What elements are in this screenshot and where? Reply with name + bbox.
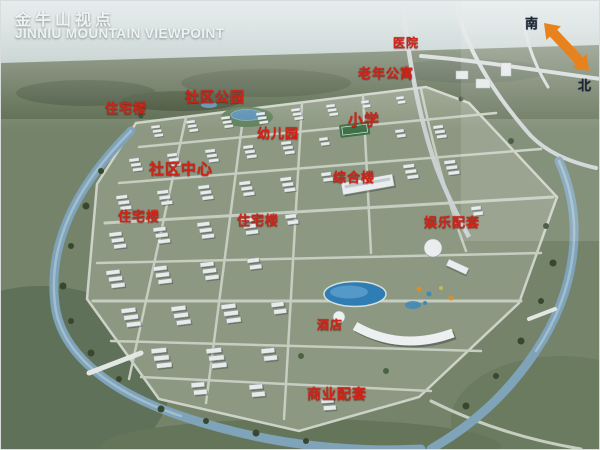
aerial-masterplan-image: 金牛山视点 JINNIU MOUNTAIN VIEWPOINT 南 北 医院 老… [0, 0, 600, 450]
haze-right [461, 1, 600, 241]
central-lake [324, 282, 386, 307]
aerial-rendering [1, 1, 600, 450]
